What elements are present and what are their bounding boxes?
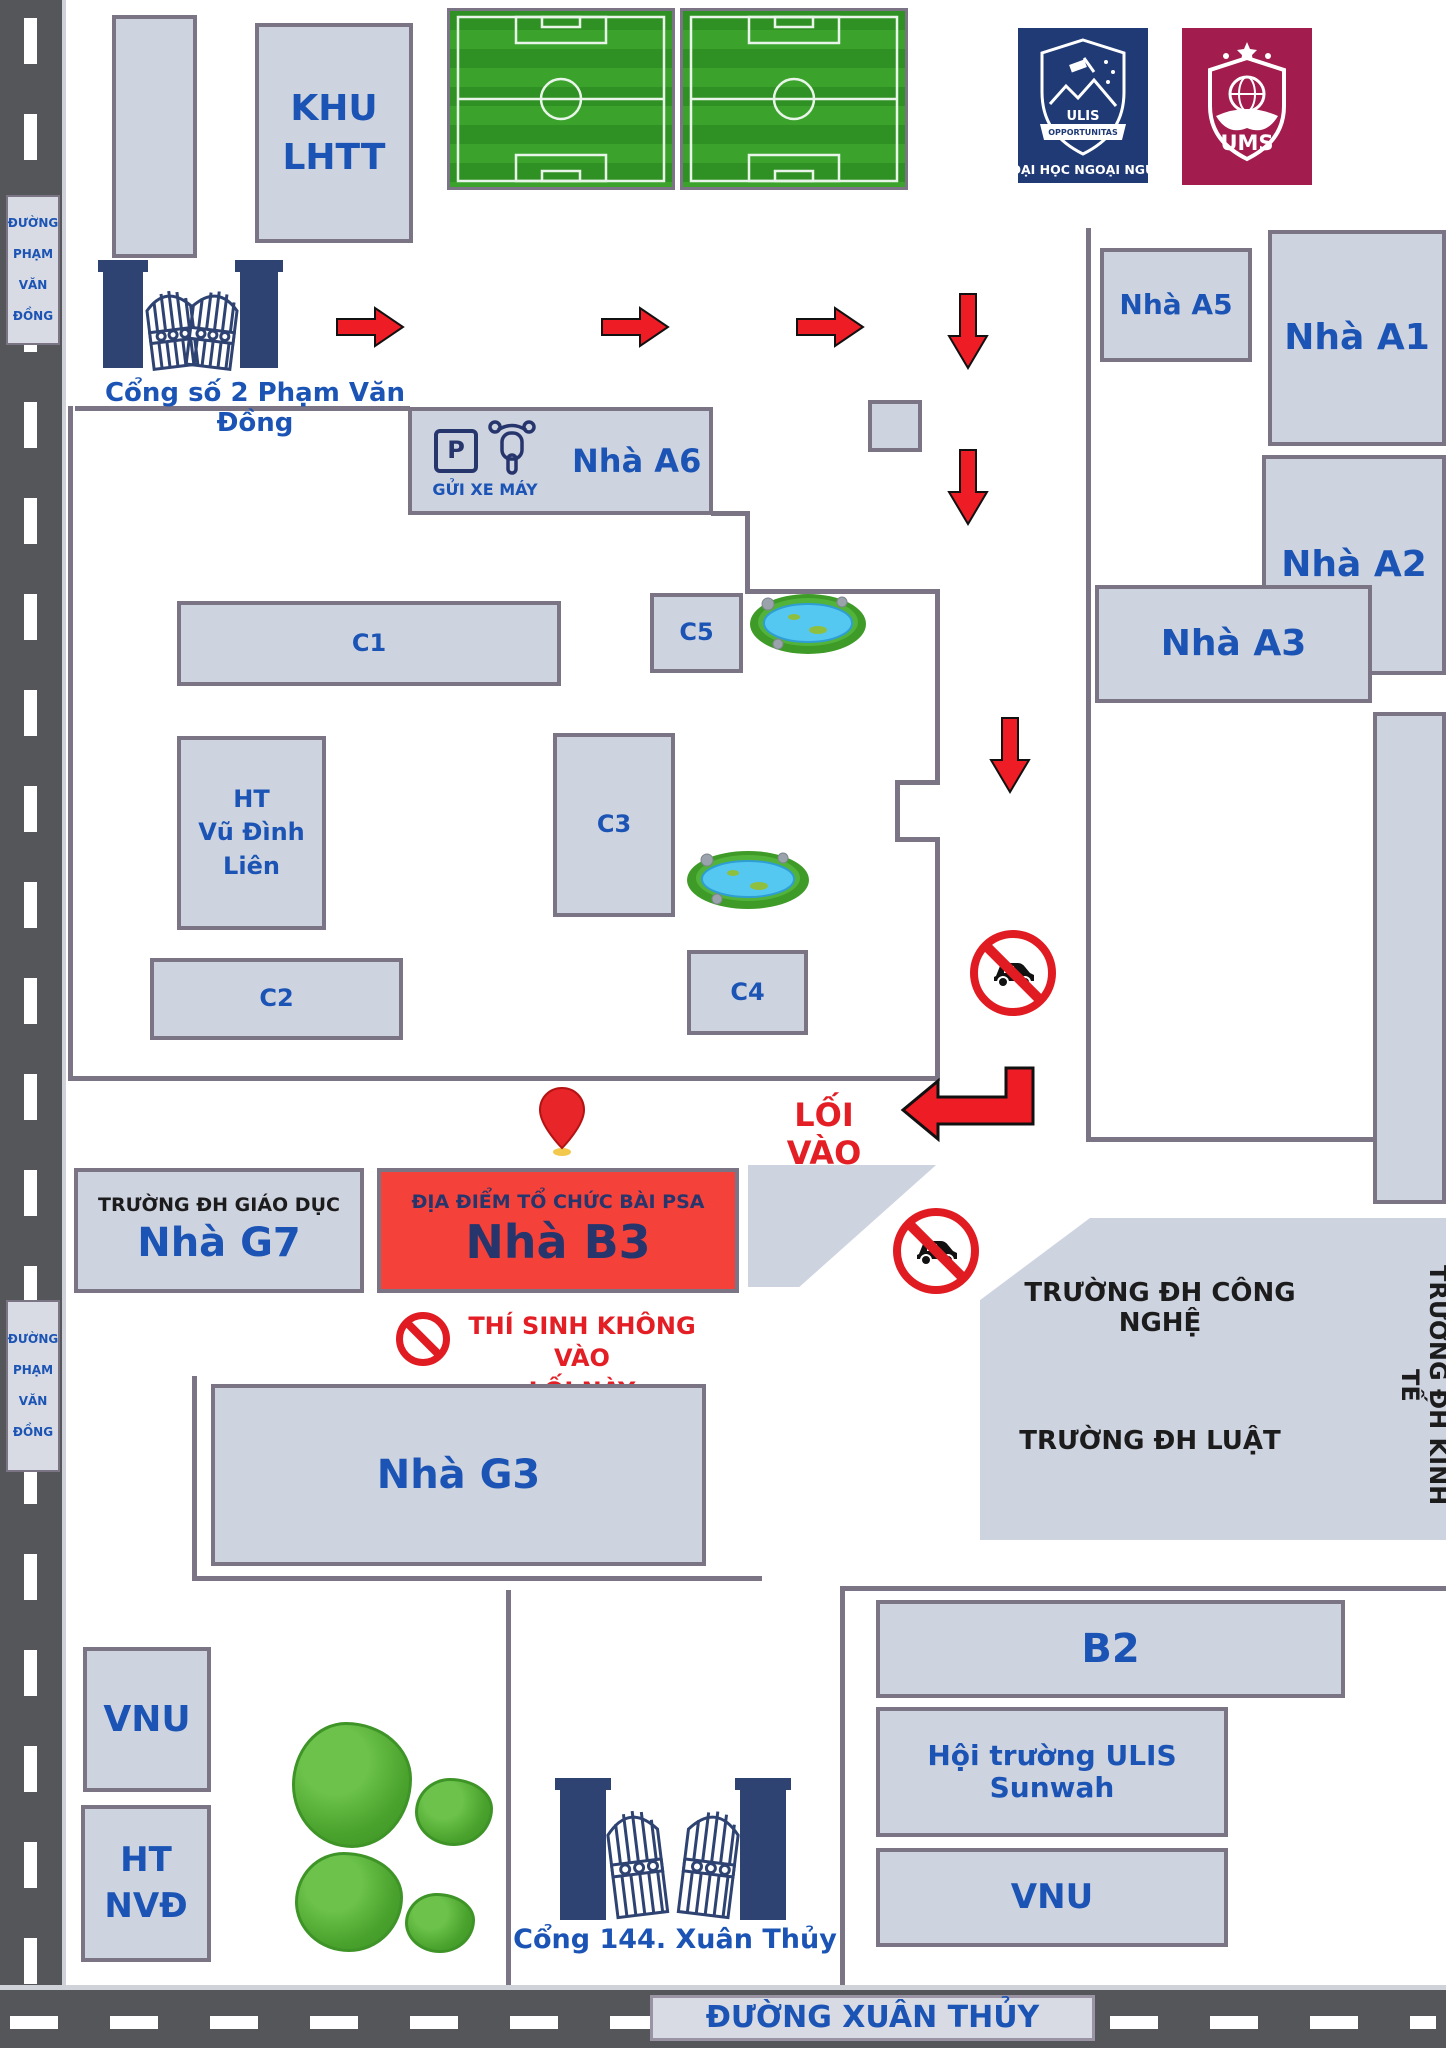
no-car-sign-icon xyxy=(970,930,1056,1016)
ums-logo: UMS xyxy=(1182,28,1312,185)
road-label-text: ĐƯỜNG XUÂN THỦY xyxy=(706,1979,1040,2048)
building-label: KHU xyxy=(290,88,377,129)
building-g7: TRƯỜNG ĐH GIÁO DỤC Nhà G7 xyxy=(74,1168,364,1293)
building-label: C1 xyxy=(352,630,386,658)
wall xyxy=(895,837,940,842)
building-c4: C4 xyxy=(687,950,808,1035)
building-c2: C2 xyxy=(150,958,403,1040)
building-label: Nhà A6 xyxy=(572,443,701,480)
wall xyxy=(192,1376,197,1580)
bush-icon xyxy=(405,1893,475,1953)
road-label-line: ĐỒNG xyxy=(13,301,53,332)
gate144-label: Cổng 144. Xuân Thủy xyxy=(495,1924,855,1955)
wall xyxy=(895,780,940,785)
road-label-xuan-thuy: ĐƯỜNG XUÂN THỦY xyxy=(650,1995,1095,2041)
building-label: C3 xyxy=(597,811,631,839)
building-label: NVĐ xyxy=(104,1887,187,1926)
svg-text:ĐẠI HỌC NGOẠI NGỮ: ĐẠI HỌC NGOẠI NGỮ xyxy=(1018,162,1148,177)
football-field-icon xyxy=(680,8,908,190)
road-label-line: PHẠM xyxy=(13,1355,53,1386)
road-label-line: PHẠM xyxy=(13,239,53,270)
building-small-square xyxy=(868,400,922,452)
pond-icon xyxy=(748,586,868,658)
parking-letter: P xyxy=(447,437,465,465)
gate-leaf-icon xyxy=(183,279,243,372)
building-sunwah: Hội trường ULIS Sunwah xyxy=(876,1707,1228,1837)
parking-icon: P xyxy=(434,429,478,473)
wall xyxy=(1086,1137,1376,1142)
gate2-label: Cổng số 2 Phạm Văn Đồng xyxy=(70,378,440,438)
wall xyxy=(68,1076,940,1081)
route-arrow-down-icon xyxy=(946,292,990,370)
label-kinh-te: TRƯỜNG ĐH KINH TẾ xyxy=(1396,1255,1446,1515)
building-label: HT xyxy=(233,786,269,814)
building-label: VNU xyxy=(103,1699,190,1740)
campus-map: ĐƯỜNG PHẠM VĂN ĐỒNG ĐƯỜNG PHẠM VĂN ĐỒNG … xyxy=(0,0,1446,2048)
road-label-pvd-top: ĐƯỜNG PHẠM VĂN ĐỒNG xyxy=(6,195,60,345)
warning-line: THÍ SINH KHÔNG VÀO xyxy=(452,1310,712,1375)
building-a6: P GỬI XE MÁY Nhà A6 xyxy=(408,407,713,515)
building-a3: Nhà A3 xyxy=(1095,585,1372,703)
wall xyxy=(935,837,940,1080)
road-label-line: ĐƯỜNG xyxy=(8,1324,58,1355)
field-markings xyxy=(683,11,905,187)
building-vnu-right: VNU xyxy=(876,1848,1228,1947)
building-b2: B2 xyxy=(876,1600,1345,1698)
prohibition-slash xyxy=(404,1320,442,1358)
wall xyxy=(895,780,900,842)
gui-xe-may-label: GỬI XE MÁY xyxy=(420,481,550,499)
area-neighbor-universities xyxy=(980,1218,1446,1540)
building-label: LHTT xyxy=(282,137,385,178)
building-ht-vu-dinh-lien: HT Vũ Đình Liên xyxy=(177,736,326,930)
route-arrow-right-icon xyxy=(600,305,670,349)
gate-pillar xyxy=(560,1786,606,1920)
label-cong-nghe: TRƯỜNG ĐH CÔNG NGHỆ xyxy=(1010,1278,1310,1338)
building-label: C5 xyxy=(679,619,713,647)
building-label: B2 xyxy=(1081,1626,1139,1672)
ums-shield-icon: UMS xyxy=(1182,28,1312,185)
pond-icon xyxy=(685,843,811,913)
gate-pillar xyxy=(103,268,143,368)
building-c5: C5 xyxy=(650,593,743,673)
road-label-line: VĂN xyxy=(19,1386,48,1417)
route-arrow-down-icon xyxy=(988,716,1032,794)
loi-vao-label: LỐI VÀO xyxy=(753,1096,895,1172)
gate-leaf-icon xyxy=(601,1797,671,1921)
building-label: Nhà A3 xyxy=(1161,623,1307,664)
building-label: VNU xyxy=(1011,1878,1093,1917)
venue-title: ĐỊA ĐIỂM TỔ CHỨC BÀI PSA xyxy=(412,1192,705,1214)
ulis-shield-icon: ULIS OPPORTUNITAS ĐẠI HỌC NGOẠI NGỮ xyxy=(1018,28,1148,183)
gate-pillar xyxy=(740,1786,786,1920)
route-arrow-down-icon xyxy=(946,448,990,526)
road-label-line: ĐƯỜNG xyxy=(8,208,58,239)
building-label: TRƯỜNG ĐH GIÁO DỤC xyxy=(98,1195,340,1217)
wall xyxy=(745,511,750,594)
bush-icon xyxy=(415,1778,493,1846)
building-label: Hội trường ULIS Sunwah xyxy=(880,1740,1224,1804)
building-right-edge xyxy=(1373,712,1446,1204)
wall xyxy=(840,1586,1446,1591)
entry-bent-arrow-icon xyxy=(900,1060,1040,1145)
building-unnamed xyxy=(112,15,197,258)
no-car-sign-icon xyxy=(893,1208,979,1294)
road-label-pvd-bottom: ĐƯỜNG PHẠM VĂN ĐỒNG xyxy=(6,1300,60,1472)
building-b3-psa-venue: ĐỊA ĐIỂM TỔ CHỨC BÀI PSA Nhà B3 xyxy=(377,1168,739,1293)
building-label: C4 xyxy=(730,979,764,1007)
no-entry-sign-icon xyxy=(396,1312,450,1366)
road-label-line: ĐỒNG xyxy=(13,1417,53,1448)
label-luat: TRƯỜNG ĐH LUẬT xyxy=(1010,1426,1290,1456)
svg-text:OPPORTUNITAS: OPPORTUNITAS xyxy=(1048,128,1118,137)
wall xyxy=(935,589,940,784)
route-arrow-right-icon xyxy=(335,305,405,349)
svg-text:UMS: UMS xyxy=(1220,131,1273,155)
building-label: Nhà A5 xyxy=(1119,289,1232,321)
gate-pillar xyxy=(240,268,278,368)
building-label: Vũ Đình xyxy=(198,819,305,847)
building-label: HT xyxy=(120,1841,172,1880)
building-ht-nvd: HT NVĐ xyxy=(81,1805,211,1962)
building-g3: Nhà G3 xyxy=(211,1384,706,1566)
road-label-line: VĂN xyxy=(19,270,48,301)
motorbike-icon xyxy=(482,417,542,479)
bush-icon xyxy=(292,1722,412,1848)
building-label: Liên xyxy=(223,853,280,881)
building-label: C2 xyxy=(259,985,293,1013)
building-label: Nhà A2 xyxy=(1281,544,1427,585)
football-field-icon xyxy=(447,8,675,190)
building-label: Nhà B3 xyxy=(465,1216,650,1269)
building-label: Nhà A1 xyxy=(1284,317,1430,358)
wall xyxy=(68,406,73,1080)
building-label: Nhà G7 xyxy=(137,1220,301,1266)
gate-leaf-icon xyxy=(675,1797,745,1921)
building-vnu-left: VNU xyxy=(83,1647,211,1792)
bush-icon xyxy=(295,1852,403,1952)
building-c3: C3 xyxy=(553,733,675,917)
wall xyxy=(192,1576,762,1581)
building-a5: Nhà A5 xyxy=(1100,248,1252,362)
ulis-logo: ULIS OPPORTUNITAS ĐẠI HỌC NGOẠI NGỮ xyxy=(1018,28,1148,183)
svg-text:ULIS: ULIS xyxy=(1066,109,1099,124)
building-khu-lhtt: KHU LHTT xyxy=(255,23,413,243)
route-arrow-right-icon xyxy=(795,305,865,349)
wall xyxy=(1086,228,1091,1142)
location-pin-icon xyxy=(538,1086,586,1158)
field-markings xyxy=(450,11,672,187)
building-c1: C1 xyxy=(177,601,561,686)
building-a1: Nhà A1 xyxy=(1268,230,1446,446)
building-label: Nhà G3 xyxy=(377,1452,541,1498)
